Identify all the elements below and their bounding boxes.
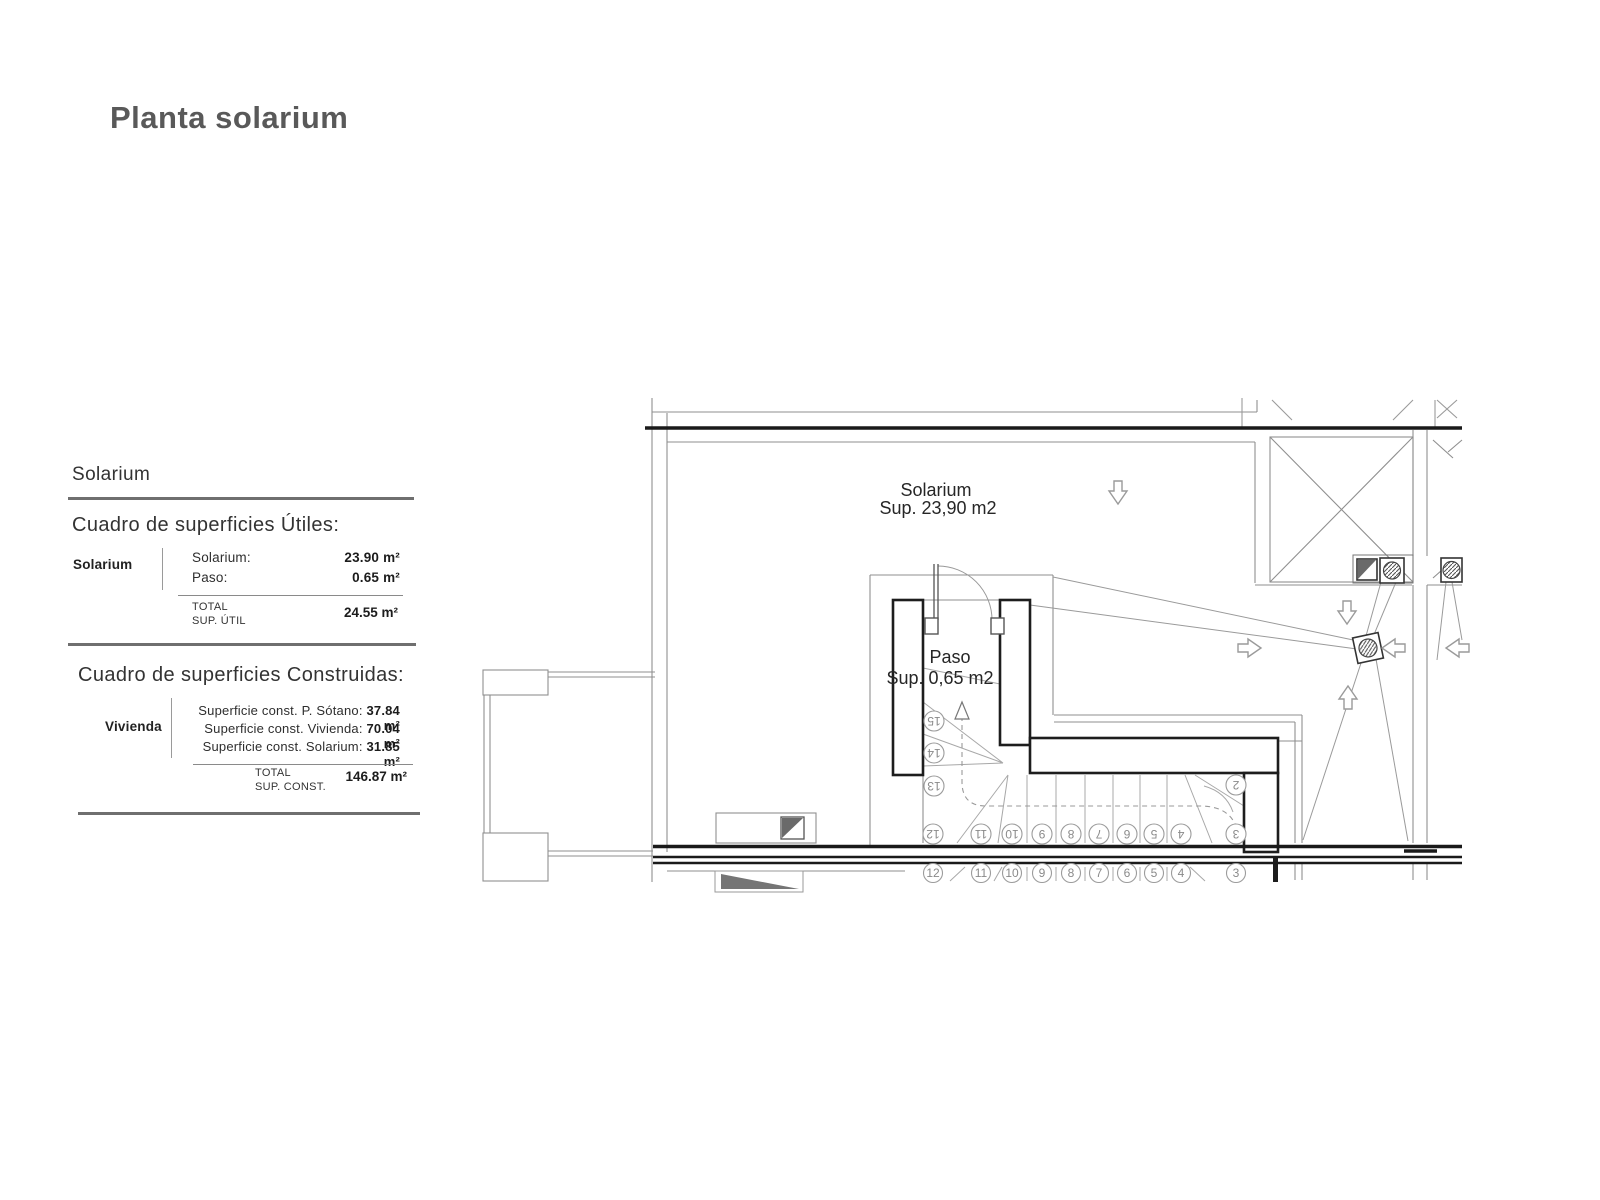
arrow-left-icon (1446, 639, 1469, 657)
arrow-down-icon (1109, 481, 1127, 504)
svg-text:3: 3 (1233, 866, 1240, 880)
arrow-down-icon (1338, 601, 1356, 624)
item-label: Solarium: (192, 550, 251, 565)
arrow-left-icon (1382, 639, 1405, 657)
utiles-total-row: TOTAL SUP. ÚTIL 24.55 m² (192, 601, 398, 628)
item-label: Paso: (192, 570, 228, 585)
utiles-table-title: Cuadro de superficies Útiles: (72, 514, 339, 537)
svg-text:6: 6 (1124, 866, 1131, 880)
solarium-room-label: Solarium (900, 480, 971, 500)
door-jamb (925, 618, 938, 634)
svg-text:6: 6 (1123, 827, 1130, 841)
total-separator (178, 595, 403, 596)
item-label: Superficie const. P. Sótano: (198, 703, 362, 718)
svg-text:10: 10 (1005, 827, 1019, 841)
slope-arrows (1109, 481, 1469, 709)
svg-text:12: 12 (926, 866, 940, 880)
paso-room-label: Paso (929, 647, 970, 667)
divider-rule (78, 812, 420, 815)
ramp-wedge-icon (721, 874, 799, 889)
total-label: TOTAL SUP. ÚTIL (192, 601, 246, 628)
svg-text:5: 5 (1151, 866, 1158, 880)
wall-stub-below-cut (1273, 858, 1278, 882)
svg-text:10: 10 (1005, 866, 1019, 880)
door-jamb (991, 618, 1004, 634)
construidas-table-title: Cuadro de superficies Construidas: (78, 664, 404, 687)
arrow-up-icon (1339, 686, 1357, 709)
vertical-divider (171, 698, 172, 758)
stair-up-arrow-icon (955, 702, 969, 719)
construidas-total-row: TOTAL SUP. CONST. 146.87 m² (255, 767, 407, 794)
svg-text:14: 14 (927, 746, 941, 760)
total-label: TOTAL SUP. CONST. (255, 767, 326, 794)
floorplan-drawing: 15 14 13 12 11 10 9 8 7 6 5 4 3 2 12 11 … (0, 0, 1600, 1200)
svg-text:13: 13 (927, 779, 941, 793)
stair-treads (923, 668, 1244, 881)
svg-text:5: 5 (1150, 827, 1157, 841)
divider-rule (68, 497, 414, 500)
svg-text:4: 4 (1178, 866, 1185, 880)
left-annex (483, 670, 655, 881)
item-value: 0.65 m² (352, 570, 400, 585)
arrow-right-icon (1238, 639, 1261, 657)
page-title: Planta solarium (110, 100, 348, 136)
vertical-divider (162, 548, 163, 590)
svg-text:9: 9 (1039, 866, 1046, 880)
divider-rule (68, 643, 416, 646)
svg-text:8: 8 (1068, 866, 1075, 880)
total-separator (193, 764, 413, 765)
paso-area-label: Sup. 0,65 m2 (886, 668, 993, 688)
pergola-marks (1242, 398, 1457, 428)
door-swing-arc (938, 566, 992, 620)
svg-text:3: 3 (1232, 827, 1239, 841)
svg-text:11: 11 (975, 866, 988, 880)
item-label: Superficie const. Vivienda: (204, 721, 362, 736)
utiles-item-row: Solarium: 23.90 m² (192, 550, 400, 565)
plan-outer-boundary (652, 398, 1257, 882)
item-value: 23.90 m² (344, 550, 400, 565)
svg-text:8: 8 (1067, 827, 1074, 841)
svg-text:15: 15 (927, 714, 941, 728)
svg-text:9: 9 (1038, 827, 1045, 841)
utiles-row-label: Solarium (73, 557, 132, 572)
solarium-area-label: Sup. 23,90 m2 (879, 498, 996, 518)
svg-text:7: 7 (1095, 827, 1102, 841)
construidas-row-label: Vivienda (105, 719, 162, 734)
lower-floor-elements (667, 813, 905, 892)
svg-text:7: 7 (1096, 866, 1103, 880)
svg-text:11: 11 (974, 827, 987, 841)
roof-drains (1353, 555, 1462, 663)
solarium-section-heading: Solarium (72, 464, 150, 486)
total-value: 24.55 m² (344, 605, 398, 628)
svg-text:4: 4 (1177, 827, 1184, 841)
utiles-item-row: Paso: 0.65 m² (192, 570, 400, 585)
drain-icon (1443, 562, 1460, 579)
door-leaf (934, 564, 938, 620)
svg-text:2: 2 (1232, 778, 1239, 792)
drain-icon (1384, 562, 1401, 579)
total-value: 146.87 m² (345, 769, 407, 794)
svg-text:12: 12 (926, 827, 940, 841)
item-label: Superficie const. Solarium: (203, 739, 363, 754)
